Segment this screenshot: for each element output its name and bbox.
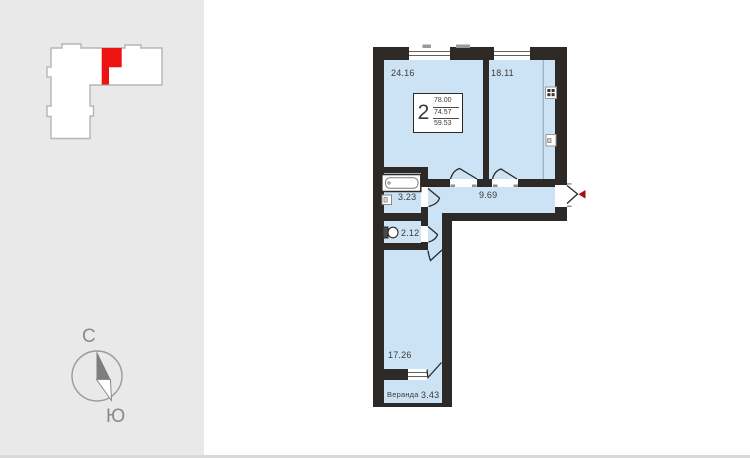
wall-top [373, 47, 567, 60]
compass-north-label: С [82, 327, 96, 346]
door-entrance [567, 186, 578, 204]
door-gap-bathroom [421, 187, 428, 207]
door-gap-kitchen [492, 179, 518, 187]
wall-room-divider [483, 60, 489, 179]
balcony-door-gap [427, 369, 442, 380]
wall-left [373, 47, 384, 407]
floorplan-viewer: С Ю 2 78.00 74.57 59.53 24.16 18.11 9.69… [0, 0, 750, 458]
rooms-count: 2 [414, 95, 433, 131]
window-glazing-line [408, 372, 427, 373]
wall-bedroom-top [373, 243, 428, 250]
window-glazing-line [409, 51, 450, 52]
door-gap-wc [421, 226, 428, 242]
window-glazing-line [409, 55, 450, 56]
label-living-area: 24.16 [391, 68, 415, 78]
door-gap-living [450, 179, 477, 187]
area-values: 78.00 74.57 59.53 [433, 96, 462, 130]
wall-bedroom-bottom [384, 369, 408, 380]
label-hall-area: 9.69 [479, 190, 497, 200]
area-total: 78.00 [433, 96, 459, 108]
window-glazing-line [494, 51, 530, 52]
label-kitchen-area: 18.11 [491, 68, 514, 78]
label-veranda-area: 3.43 [421, 390, 439, 400]
wall-veranda-bottom [373, 403, 452, 407]
wall-hall-bottom [442, 213, 567, 221]
wall-bath-wc-divider [384, 213, 421, 221]
wall-wing-right [442, 213, 452, 407]
apartment-info-box: 2 78.00 74.57 59.53 [413, 93, 463, 133]
entry-arrow-icon [579, 190, 586, 199]
compass-south-label: Ю [106, 407, 125, 426]
corridor-door-gap [428, 243, 442, 250]
window-living [409, 47, 450, 60]
label-veranda: Веранда [387, 391, 419, 400]
label-bedroom-area: 17.26 [388, 350, 412, 360]
window-glazing-line [494, 55, 530, 56]
window-glazing-line [408, 376, 427, 377]
area-reduced: 74.57 [433, 108, 459, 120]
label-bath-area: 3.23 [398, 192, 416, 202]
label-wc-area: 2.12 [401, 228, 419, 238]
window-veranda [408, 369, 427, 380]
window-kitchen [494, 47, 530, 60]
door-gap-entrance [555, 185, 567, 207]
area-living: 59.53 [433, 119, 459, 130]
